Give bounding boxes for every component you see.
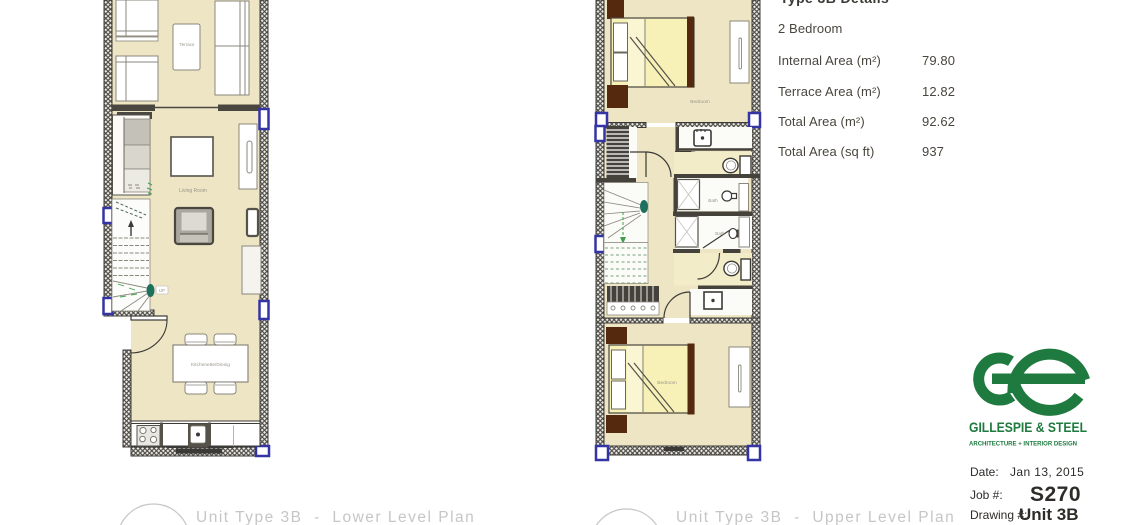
svg-text:UP: UP — [159, 288, 165, 293]
svg-text:GILLESPIE & STEEL: GILLESPIE & STEEL — [969, 419, 1087, 435]
svg-text:Bath: Bath — [715, 231, 725, 236]
svg-text:Terrace: Terrace — [179, 42, 195, 47]
svg-text:Bedroom: Bedroom — [690, 99, 709, 105]
svg-text:ARCHITECTURE + INTERIOR DESIGN: ARCHITECTURE + INTERIOR DESIGN — [969, 441, 1078, 448]
svg-text:Kitchenette/Dining: Kitchenette/Dining — [191, 362, 230, 368]
svg-text:Living Room: Living Room — [179, 188, 207, 194]
svg-text:Bath: Bath — [708, 198, 718, 203]
svg-text:Bedroom: Bedroom — [657, 380, 676, 386]
